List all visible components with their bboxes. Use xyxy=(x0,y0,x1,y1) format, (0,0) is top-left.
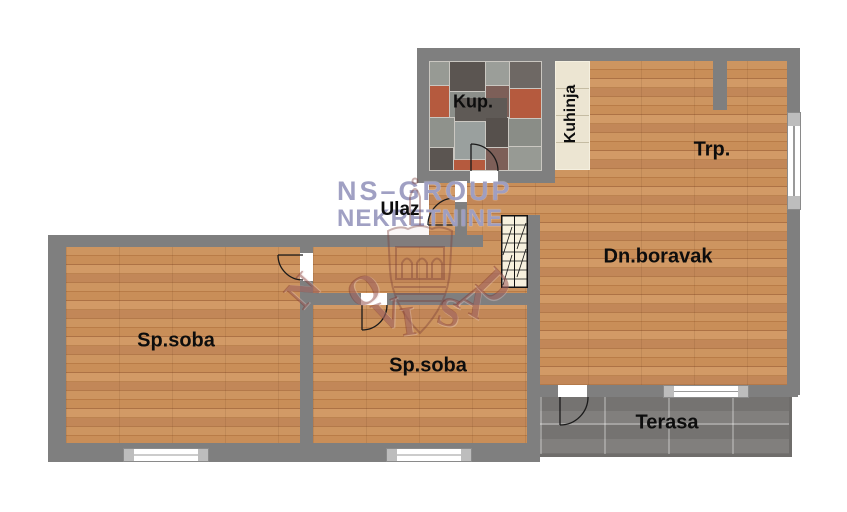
room-label-bathroom: Kup. xyxy=(453,92,493,113)
room-label-entrance: Ulaz xyxy=(380,199,419,221)
room-label-living: Dn.boravak xyxy=(604,246,713,269)
room-label-kitchen: Kuhinja xyxy=(562,85,580,144)
room-label-bedroom2: Sp.soba xyxy=(389,355,467,378)
floor-plan: NS–GROUP NEKRETNINE NOVISAD Kup. Kuhinja… xyxy=(0,0,847,512)
room-label-terrace: Terasa xyxy=(635,412,698,435)
room-label-bedroom1: Sp.soba xyxy=(137,330,215,353)
room-label-dining: Trp. xyxy=(694,139,731,162)
